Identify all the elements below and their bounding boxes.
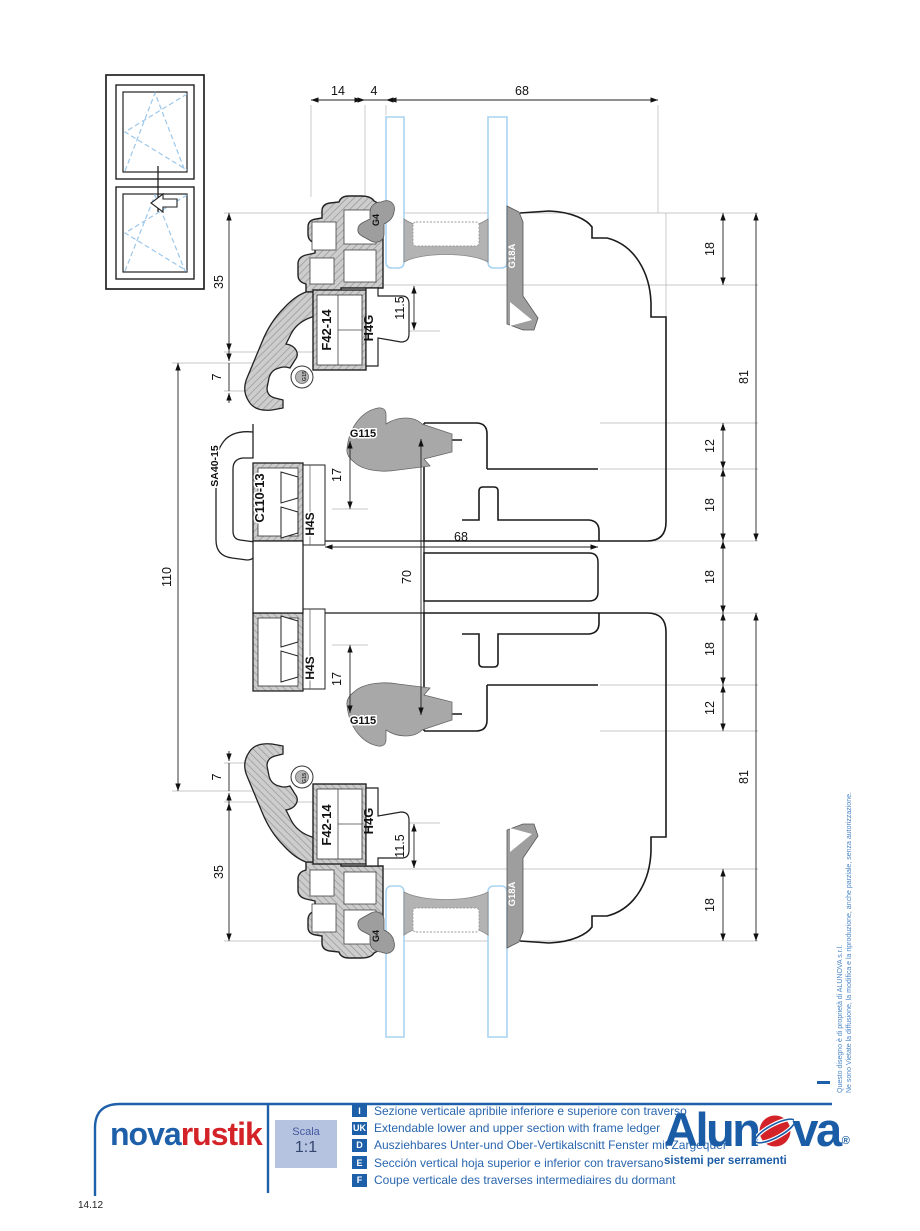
dim-11-5-bottom: 11.5	[393, 834, 407, 857]
dim-left-7-top: 7	[210, 373, 224, 380]
drawing-page: 14 4 68 35 7 110 7 35 11.5 17 68 70 17 1…	[0, 0, 920, 1231]
transom-box-middle	[253, 541, 303, 613]
dim-mid-68: 68	[454, 530, 468, 544]
copyright-notice: Questo disegno è di proprietà di ALUNOVA…	[836, 815, 854, 1093]
label-g4-bottom: G4	[371, 930, 381, 942]
company-tagline: sistemi per serramenti	[664, 1155, 904, 1167]
label-h4g-bottom: H4G	[361, 808, 376, 835]
scale-box: Scala 1:1	[275, 1120, 337, 1168]
label-c110: C110-13	[252, 473, 267, 522]
dim-left-110: 110	[160, 567, 174, 587]
label-g4-top: G4	[371, 214, 381, 226]
cover-clip-sa40	[216, 424, 255, 560]
window-elevation-symbol	[106, 75, 204, 289]
dim-17-bottom: 17	[330, 672, 344, 686]
lang-badge-d: D	[352, 1139, 367, 1152]
profile-geometry-top	[245, 117, 666, 545]
dim-right-18-4: 18	[703, 642, 717, 656]
label-h4s-bottom: H4S	[303, 656, 317, 679]
dim-left-35-bottom: 35	[212, 865, 226, 879]
dimension-labels: 14 4 68 35 7 110 7 35 11.5 17 68 70 17 1…	[160, 84, 751, 912]
transom-front	[424, 553, 598, 601]
label-g115-top: G115	[350, 428, 376, 440]
label-h4s-top: H4S	[303, 512, 317, 535]
company-logo-text-1: Alun	[664, 1106, 758, 1153]
series-logo-nova: nova	[110, 1116, 181, 1152]
dim-right-12-2: 12	[703, 701, 717, 715]
label-f42-top: F42-14	[319, 309, 334, 351]
series-logo: novarustik	[110, 1118, 262, 1150]
dim-17-top: 17	[330, 468, 344, 482]
page-number: 14.12	[78, 1200, 103, 1211]
dim-right-12-1: 12	[703, 439, 717, 453]
description-it: Sezione verticale apribile inferiore e s…	[374, 1104, 687, 1118]
dim-right-18-5: 18	[703, 898, 717, 912]
dim-left-7-bottom: 7	[210, 773, 224, 780]
label-g18a-top: G18A	[507, 243, 518, 268]
section-drawing: 14 4 68 35 7 110 7 35 11.5 17 68 70 17 1…	[0, 0, 920, 1095]
label-g15-bottom: G15	[302, 773, 308, 783]
copyright-line2: Ne sono Vietate la diffusione, la modifi…	[845, 815, 854, 1093]
dim-top-4: 4	[371, 84, 378, 98]
company-logo-text-2: va	[792, 1106, 839, 1153]
copyright-line1: Questo disegno è di proprietà di ALUNOVA…	[836, 815, 845, 1093]
dim-right-18-1: 18	[703, 242, 717, 256]
label-g18a-bottom: G18A	[507, 881, 518, 906]
label-sa40: SA40-15	[209, 445, 221, 487]
globe-icon	[756, 1110, 794, 1150]
lang-badge-i: I	[352, 1104, 367, 1117]
lang-badge-uk: UK	[352, 1122, 367, 1135]
description-en: Extendable lower and upper section with …	[374, 1121, 660, 1135]
scale-value: 1:1	[275, 1139, 337, 1157]
dim-left-35-top: 35	[212, 275, 226, 289]
label-g15-top: G15	[302, 371, 308, 381]
dim-right-81-bottom: 81	[737, 770, 751, 784]
glass-pane	[488, 117, 507, 268]
dim-top-68: 68	[515, 84, 529, 98]
series-logo-rustik: rustik	[181, 1116, 262, 1152]
description-es: Sección vertical hoja superior e inferio…	[374, 1156, 663, 1170]
dim-right-18-2: 18	[703, 498, 717, 512]
label-g115-bottom: G115	[350, 715, 376, 727]
registered-mark: ®	[842, 1136, 848, 1147]
description-fr: Coupe verticale des traverses intermedia…	[374, 1173, 675, 1187]
dim-right-81-top: 81	[737, 370, 751, 384]
label-f42-bottom: F42-14	[319, 804, 334, 846]
scale-label: Scala	[275, 1126, 337, 1138]
company-logo: Alun va® sistemi per serramenti	[664, 1106, 904, 1186]
dim-right-18-3: 18	[703, 570, 717, 584]
lang-badge-e: E	[352, 1156, 367, 1169]
copyright-divider	[817, 1081, 830, 1084]
dim-11-5-top: 11.5	[393, 296, 407, 319]
glass-pane	[386, 117, 404, 268]
tilt-turn-symbol-icon	[125, 93, 187, 271]
dim-top-14: 14	[331, 84, 345, 98]
lang-badge-f: F	[352, 1174, 367, 1187]
dim-mid-70: 70	[400, 570, 414, 584]
label-h4g-top: H4G	[361, 315, 376, 342]
